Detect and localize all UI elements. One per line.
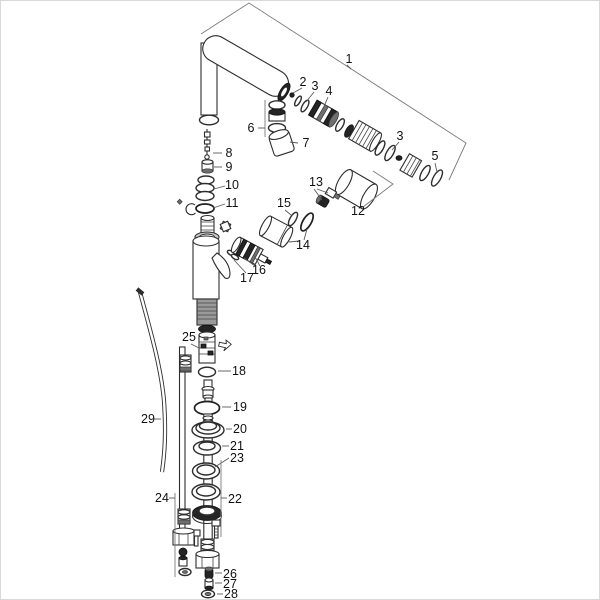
washer [192,484,220,500]
part-label-1: 1 [346,52,353,66]
leader-part-10 [214,186,225,189]
washer-28 [202,590,215,598]
part-label-9: 9 [226,160,233,174]
curved-hose [137,289,165,472]
part-label-11: 11 [226,196,239,210]
seal-bead [179,548,187,556]
part-label-12: 12 [351,204,365,218]
leader-part-15 [285,210,291,215]
seal-2 [290,93,294,97]
left-arrow-icon [218,339,232,352]
assembly-bracket [201,3,466,180]
part-label-20: 20 [233,422,247,436]
part-label-7: 7 [303,136,310,150]
part-label-14: 14 [296,238,310,252]
leader-part-11 [213,204,225,208]
aerator-ring [400,154,422,177]
part-label-23: 23 [230,451,244,465]
part-label-5: 5 [432,149,439,163]
pin-8 [205,155,209,159]
seal-11 [196,204,214,213]
check-valve [199,332,232,363]
part-label-15: 15 [277,196,291,210]
part-label-8: 8 [226,146,233,160]
part-label-28: 28 [224,587,238,600]
hose-tip [137,289,143,294]
leader-part-5 [435,163,437,172]
part-label-6: 6 [248,121,255,135]
retaining-clip [186,204,196,215]
bracket-part-22 [221,460,227,537]
hose-nut [173,528,194,545]
part-label-24: 24 [155,491,169,505]
plug [315,194,330,208]
hose-connector-top [180,355,191,372]
washer-21 [194,441,221,455]
aerator-parts [290,93,445,188]
part-label-16: 16 [252,263,266,277]
seal-10 [198,176,214,184]
fixing-screw-right [212,520,220,538]
outlet-parts [268,101,295,157]
part-label-13: 13 [309,175,323,189]
part-label-10: 10 [225,178,239,192]
seal-cup [179,556,187,566]
lower-stack [192,367,224,598]
part-label-4: 4 [326,84,333,98]
part-label-17: 17 [240,271,254,285]
exploded-parts-diagram: 1 2 3 4 3 5 6 7 8 9 10 11 12 13 14 15 16… [0,0,600,600]
part-label-22: 22 [228,492,242,506]
part-label-3a: 3 [312,79,319,93]
cartridge [227,236,275,271]
diagram-artwork: 1 2 3 4 3 5 6 7 8 9 10 11 12 13 14 15 16… [1,1,600,600]
leader-part-25 [191,344,199,348]
leader-part-3a [306,92,314,102]
part-label-18: 18 [232,364,246,378]
part-label-3b: 3 [397,129,404,143]
washer-23 [193,463,220,479]
part-label-19: 19 [233,400,247,414]
part-label-29: 29 [141,412,155,426]
handle-knob [315,167,381,211]
valve-stack [177,129,214,215]
washer-small [179,569,191,576]
stem-nut [196,551,219,569]
spout-o-ring [200,115,219,125]
part-label-2: 2 [300,75,307,89]
hose-fitting-27 [205,578,213,590]
leader-part-23 [215,458,229,467]
hose-fitting-26 [205,567,213,578]
flange-20 [192,422,224,438]
o-ring-19 [195,402,220,415]
o-ring-18 [199,367,216,377]
hose-connector-mid [178,509,190,524]
supply-hose [173,347,194,576]
faucet-body [193,216,231,333]
part-label-25: 25 [182,330,196,344]
